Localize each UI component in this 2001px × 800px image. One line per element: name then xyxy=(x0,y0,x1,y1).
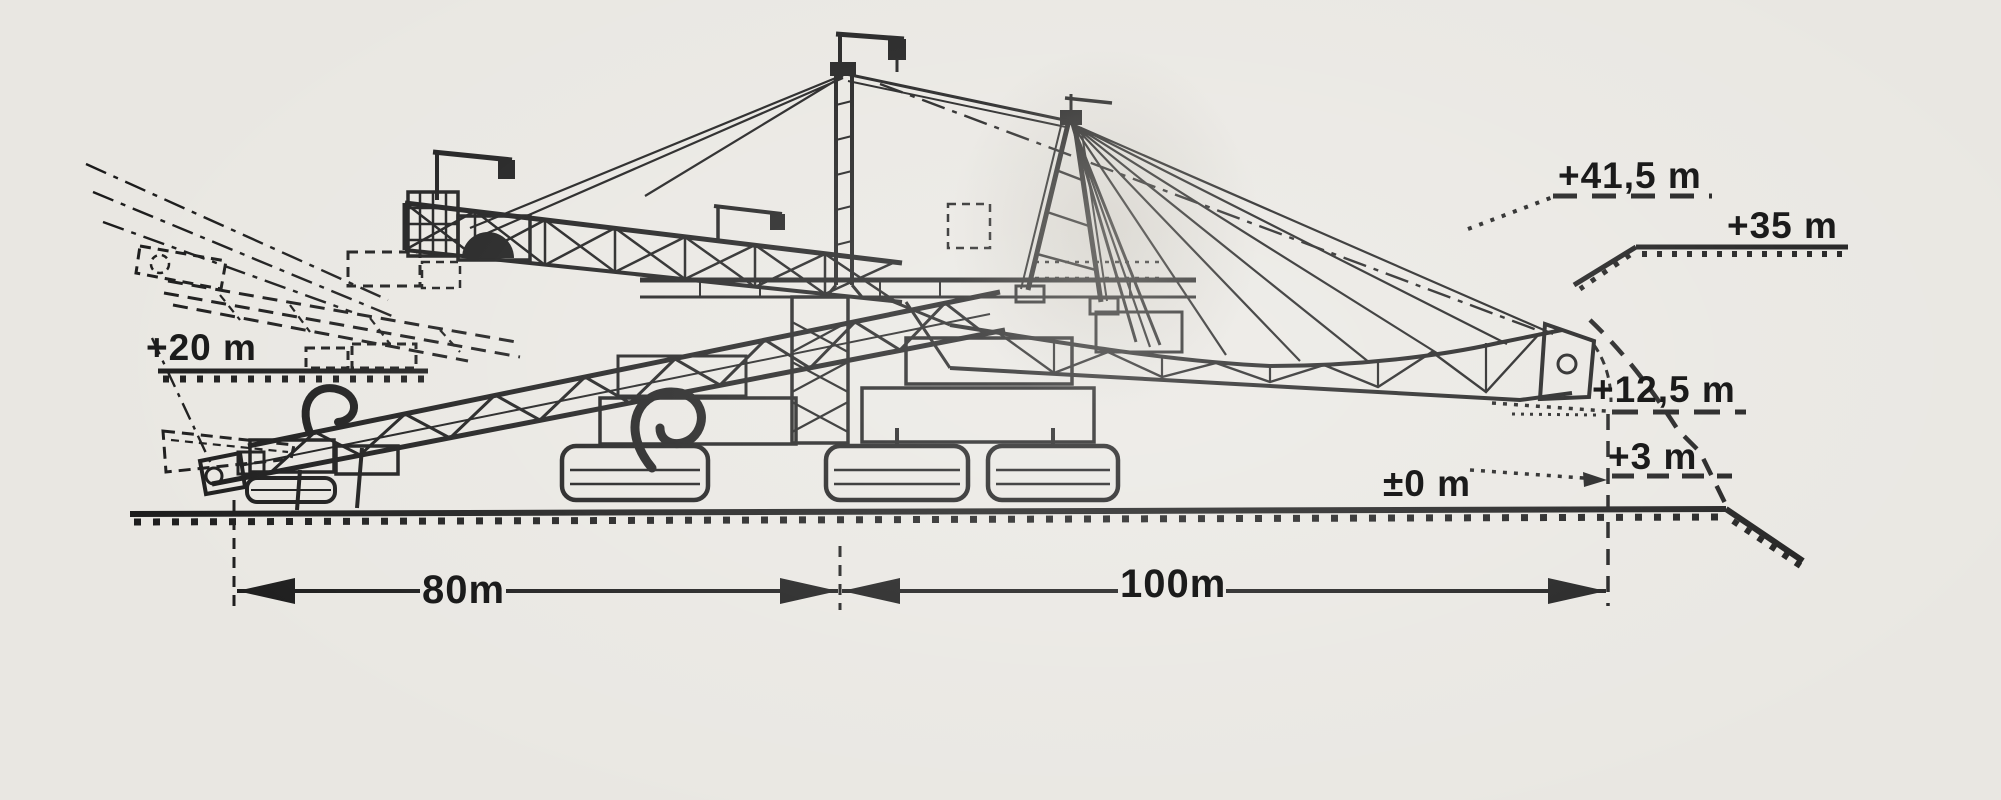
discharge-head xyxy=(1540,324,1594,399)
raised-cab xyxy=(422,262,460,288)
bench-35-slope-hatch xyxy=(1580,255,1630,289)
dashed-hopper xyxy=(948,204,990,248)
receiving-boom xyxy=(200,292,1005,494)
terrain xyxy=(130,196,1848,606)
discharge-cable-fan xyxy=(1072,124,1553,363)
discharge-head-pulley xyxy=(1558,355,1576,373)
raised-position-cable xyxy=(880,84,1537,330)
right-slope xyxy=(1726,509,1803,561)
alternate-position-outlines xyxy=(86,164,1165,472)
right-slope-hatch xyxy=(1733,521,1802,567)
dim-arrow-80-right xyxy=(780,578,838,604)
engineering-diagram: +41,5 m +35 m +20 m +12,5 m +3 m ±0 m 80… xyxy=(0,0,2001,800)
discharge-top-chord xyxy=(950,325,1562,366)
crawler-2 xyxy=(826,446,968,500)
mast-aframe-stay-2 xyxy=(848,81,1066,127)
crawler-3-stripes xyxy=(996,470,1110,484)
dashed-platform-edge xyxy=(1035,262,1165,278)
service-crane-1-arm xyxy=(433,152,512,160)
crawler-3 xyxy=(988,446,1118,500)
elevation-label-35: +35 m xyxy=(1727,205,1838,247)
dimension-label-80m: 80m xyxy=(422,568,505,613)
dimension-label-100m: 100m xyxy=(1120,562,1226,607)
mast-left-cables xyxy=(470,75,843,238)
elevation-label-3: +3 m xyxy=(1608,436,1697,478)
raised-crawler-1 xyxy=(306,348,348,368)
bench-41-5-slope xyxy=(1468,197,1553,229)
service-crane-1-block xyxy=(498,160,515,179)
elevation-label-0: ±0 m xyxy=(1383,463,1471,505)
service-crane-2-arm xyxy=(714,206,782,214)
raised-cable-3 xyxy=(103,222,352,312)
level-3-arrow xyxy=(1583,472,1607,487)
dim-arrow-100-right xyxy=(1548,578,1606,604)
level-12-5-leader2 xyxy=(1512,414,1596,415)
mast-ties xyxy=(836,101,852,245)
dim-arrow-100-left xyxy=(842,578,900,604)
dim-arrow-80-left xyxy=(237,578,295,604)
ground-line xyxy=(130,509,1726,514)
service-crane-2-block xyxy=(770,214,785,230)
crawler-2-stripes xyxy=(834,470,960,484)
bench-35-slope xyxy=(1574,247,1636,285)
elevation-label-20: +20 m xyxy=(146,327,257,369)
raised-crawler-2 xyxy=(352,344,416,368)
mast-aframe-stay xyxy=(846,74,1069,121)
discharge-bracing xyxy=(1000,333,1540,392)
crawler-1 xyxy=(562,446,708,500)
a-frame-legs xyxy=(1028,120,1101,302)
mast-top-jib-block xyxy=(888,39,906,60)
raised-boom-pulley xyxy=(151,255,169,273)
spreader-machine xyxy=(200,34,1611,510)
receiving-boom-bottom-chord xyxy=(212,330,1005,484)
chute-hook-large xyxy=(635,392,701,468)
mast-top-jib-arm xyxy=(836,34,904,39)
a-frame-top-node xyxy=(1060,110,1082,125)
ground-hatch xyxy=(134,517,1724,522)
crawler-1-stripes xyxy=(570,470,700,484)
level-12-5-leader xyxy=(1492,403,1606,411)
elevation-label-12-5: +12,5 m xyxy=(1592,369,1736,411)
elevation-label-41-5: +41,5 m xyxy=(1558,155,1702,197)
counterweight-grid-lines xyxy=(408,192,458,256)
level-3-leader xyxy=(1470,470,1598,479)
